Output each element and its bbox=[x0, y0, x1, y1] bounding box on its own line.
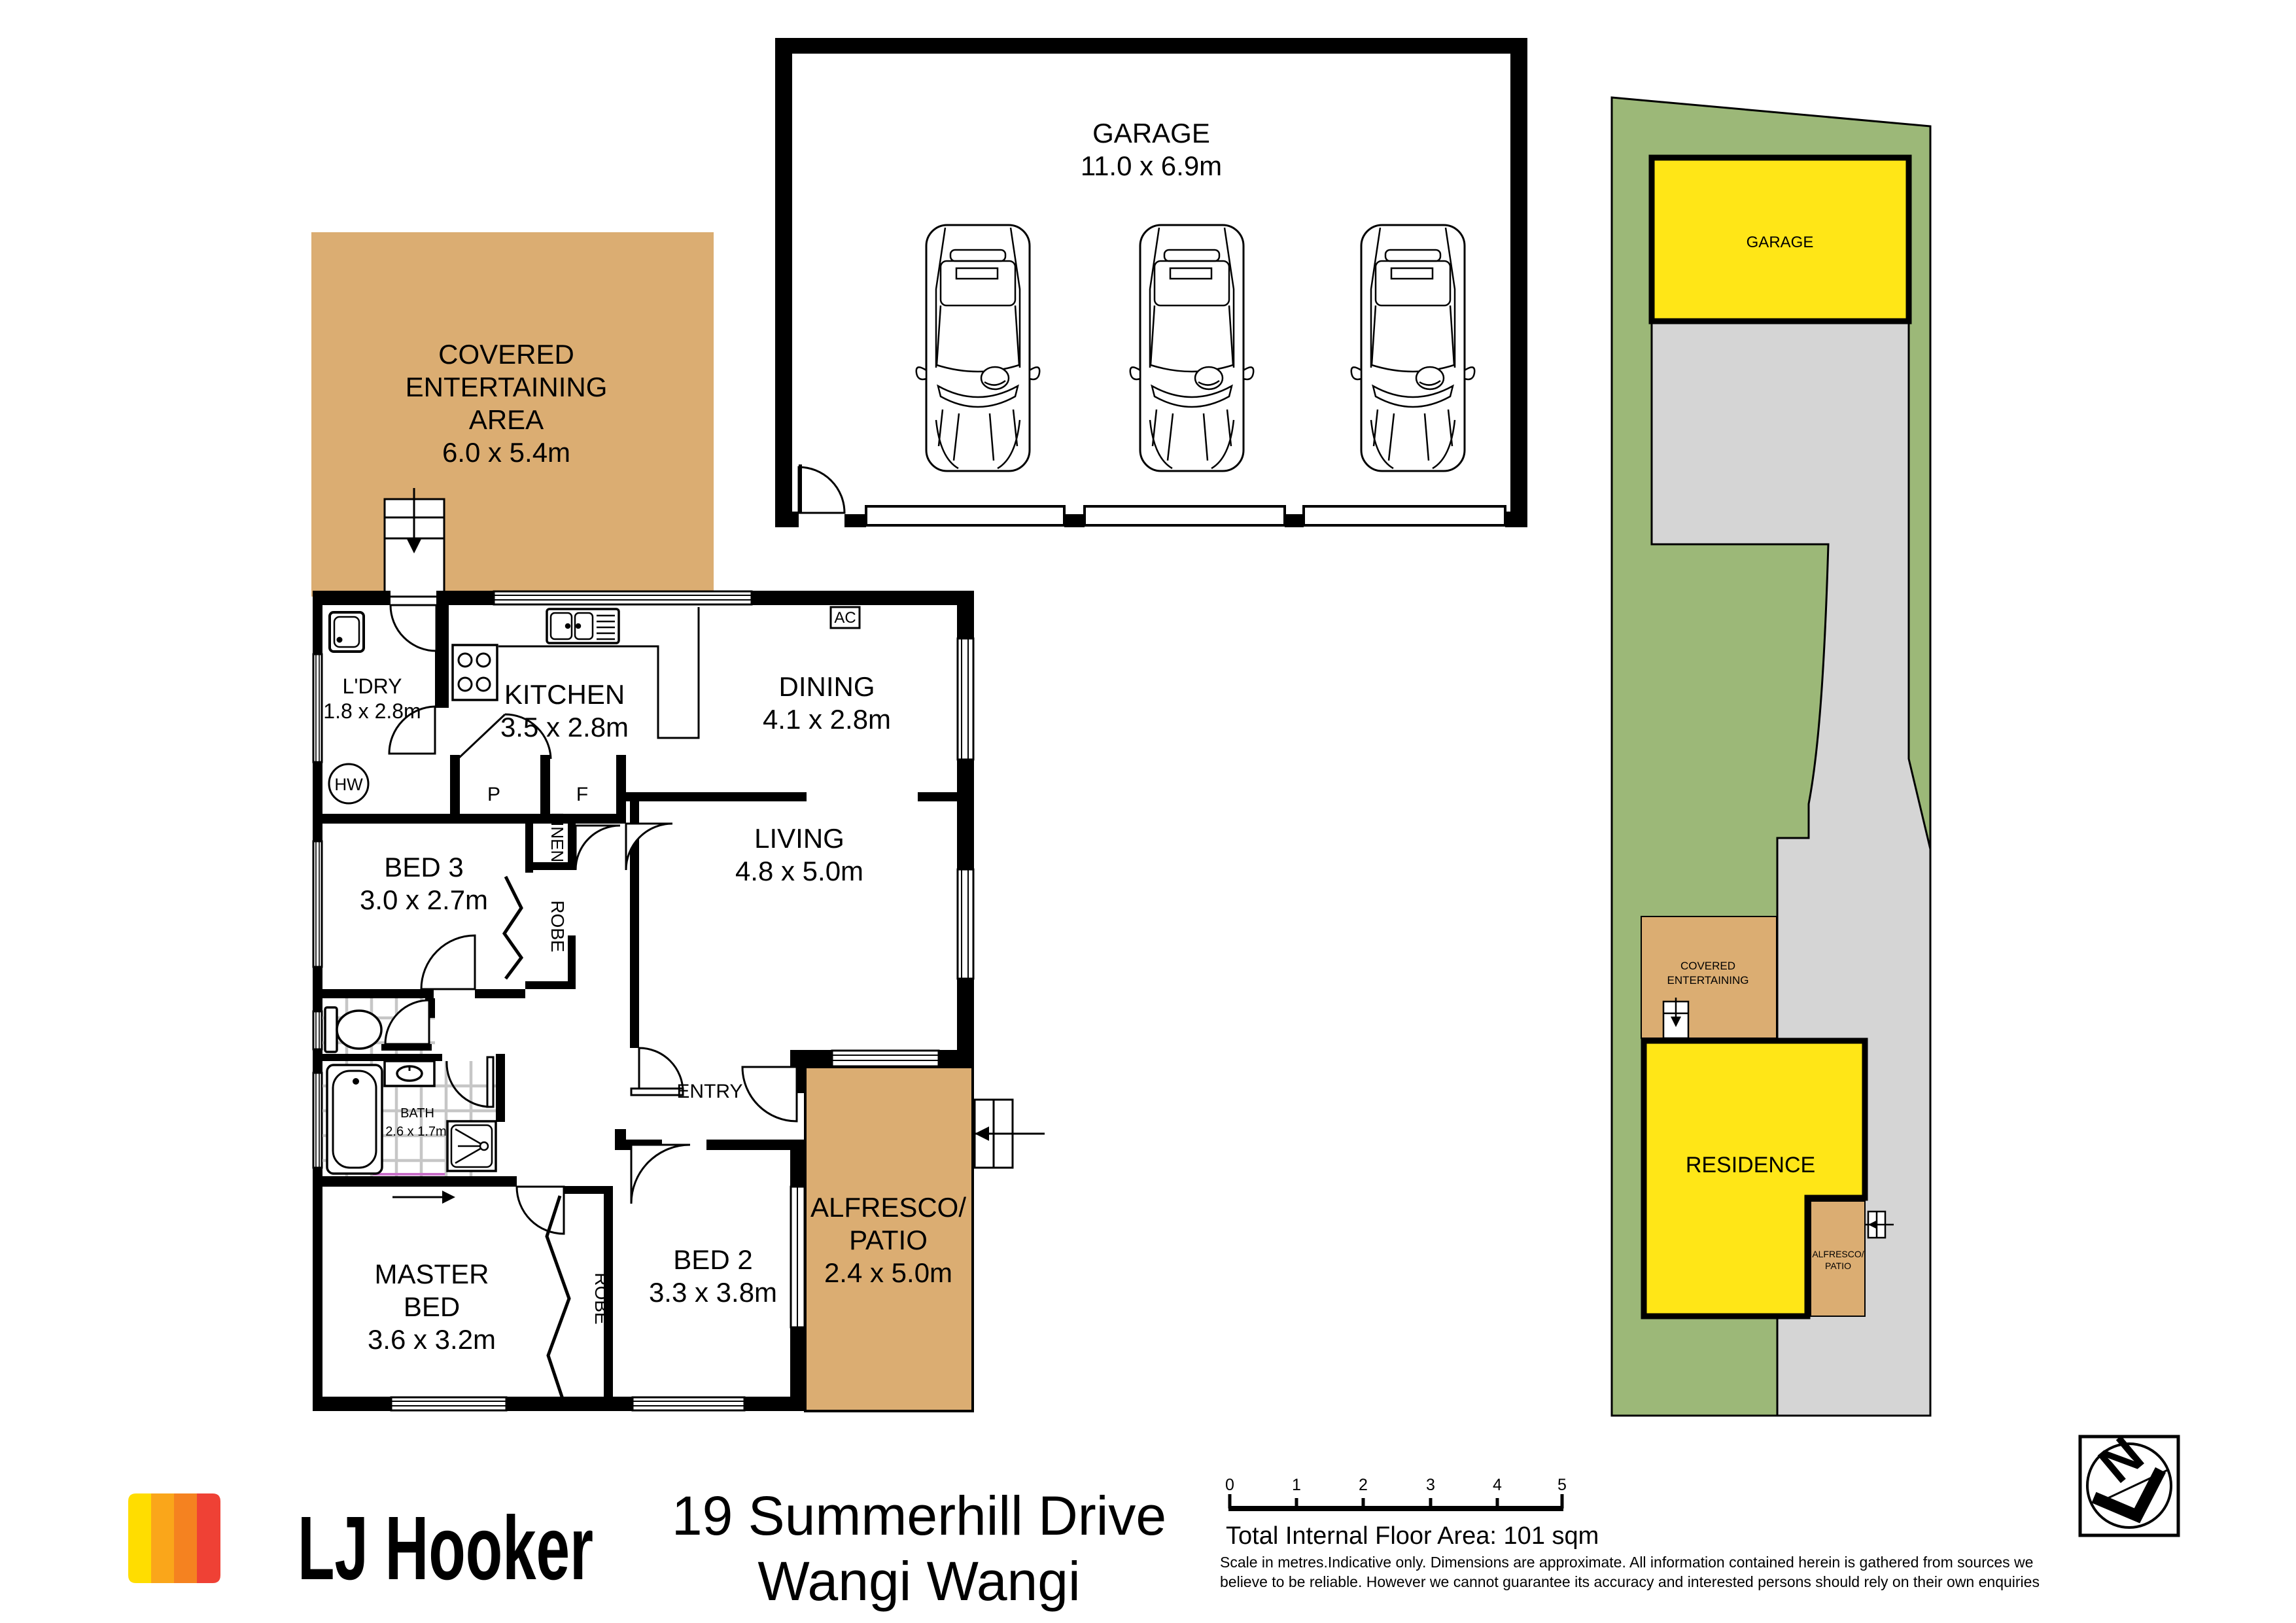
svg-text:3.3 x 3.8m: 3.3 x 3.8m bbox=[649, 1277, 777, 1308]
svg-text:KITCHEN: KITCHEN bbox=[504, 679, 625, 710]
svg-text:3: 3 bbox=[1426, 1476, 1435, 1494]
svg-text:AC: AC bbox=[834, 609, 856, 627]
svg-text:MASTER: MASTER bbox=[374, 1259, 489, 1289]
svg-text:4.8 x 5.0m: 4.8 x 5.0m bbox=[735, 856, 863, 886]
svg-text:PATIO: PATIO bbox=[1825, 1261, 1851, 1271]
svg-text:3.5 x 2.8m: 3.5 x 2.8m bbox=[500, 712, 629, 742]
svg-text:11.0 x 6.9m: 11.0 x 6.9m bbox=[1081, 150, 1222, 181]
svg-text:0: 0 bbox=[1225, 1476, 1234, 1494]
svg-text:Total Internal Floor Area: 101: Total Internal Floor Area: 101 sqm bbox=[1226, 1522, 1599, 1550]
svg-text:BED 3: BED 3 bbox=[384, 852, 463, 882]
svg-text:3.0 x 2.7m: 3.0 x 2.7m bbox=[360, 884, 488, 915]
svg-text:4: 4 bbox=[1493, 1476, 1502, 1494]
svg-text:L'DRY: L'DRY bbox=[343, 674, 402, 698]
svg-text:ROBE: ROBE bbox=[591, 1272, 612, 1324]
svg-text:RESIDENCE: RESIDENCE bbox=[1686, 1153, 1815, 1178]
svg-text:DINING: DINING bbox=[779, 671, 875, 702]
svg-text:ROBE: ROBE bbox=[548, 900, 568, 952]
svg-text:ENTERTAINING: ENTERTAINING bbox=[406, 372, 608, 402]
svg-text:4.1 x 2.8m: 4.1 x 2.8m bbox=[763, 704, 891, 735]
svg-text:LINEN: LINEN bbox=[548, 812, 567, 863]
svg-text:HW: HW bbox=[334, 775, 363, 794]
svg-text:19 Summerhill Drive: 19 Summerhill Drive bbox=[672, 1485, 1166, 1546]
svg-text:2: 2 bbox=[1359, 1476, 1368, 1494]
svg-text:F: F bbox=[576, 784, 588, 805]
svg-text:LJ Hooker: LJ Hooker bbox=[298, 1498, 593, 1599]
svg-text:PATIO: PATIO bbox=[849, 1225, 928, 1255]
svg-text:ALFRESCO/: ALFRESCO/ bbox=[1812, 1249, 1864, 1259]
svg-text:3.6 x 3.2m: 3.6 x 3.2m bbox=[368, 1324, 496, 1355]
svg-text:Wangi Wangi: Wangi Wangi bbox=[757, 1550, 1080, 1612]
svg-text:AREA: AREA bbox=[469, 404, 544, 435]
svg-text:ENTERTAINING: ENTERTAINING bbox=[1667, 974, 1749, 986]
svg-text:believe to be reliable. Howeve: believe to be reliable. However we canno… bbox=[1220, 1573, 2040, 1590]
svg-text:GARAGE: GARAGE bbox=[1092, 118, 1210, 148]
svg-text:Scale in metres.Indicative onl: Scale in metres.Indicative only. Dimensi… bbox=[1220, 1554, 2033, 1571]
svg-text:2.4 x 5.0m: 2.4 x 5.0m bbox=[824, 1257, 952, 1288]
svg-text:6.0 x 5.4m: 6.0 x 5.4m bbox=[442, 437, 570, 468]
svg-text:BED 2: BED 2 bbox=[673, 1244, 752, 1275]
svg-text:COVERED: COVERED bbox=[1680, 960, 1735, 972]
svg-text:1.8 x 2.8m: 1.8 x 2.8m bbox=[323, 699, 421, 723]
svg-text:ENTRY: ENTRY bbox=[676, 1081, 742, 1102]
svg-text:1: 1 bbox=[1292, 1476, 1301, 1494]
svg-text:ALFRESCO/: ALFRESCO/ bbox=[810, 1192, 966, 1223]
svg-text:BATH: BATH bbox=[400, 1106, 434, 1121]
svg-text:P: P bbox=[487, 784, 500, 805]
svg-text:COVERED: COVERED bbox=[438, 339, 574, 370]
svg-text:GARAGE: GARAGE bbox=[1747, 234, 1814, 251]
svg-text:5: 5 bbox=[1557, 1476, 1567, 1494]
svg-text:BED: BED bbox=[404, 1291, 460, 1322]
svg-text:LIVING: LIVING bbox=[754, 823, 844, 854]
svg-text:2.6 x 1.7m: 2.6 x 1.7m bbox=[385, 1125, 446, 1139]
